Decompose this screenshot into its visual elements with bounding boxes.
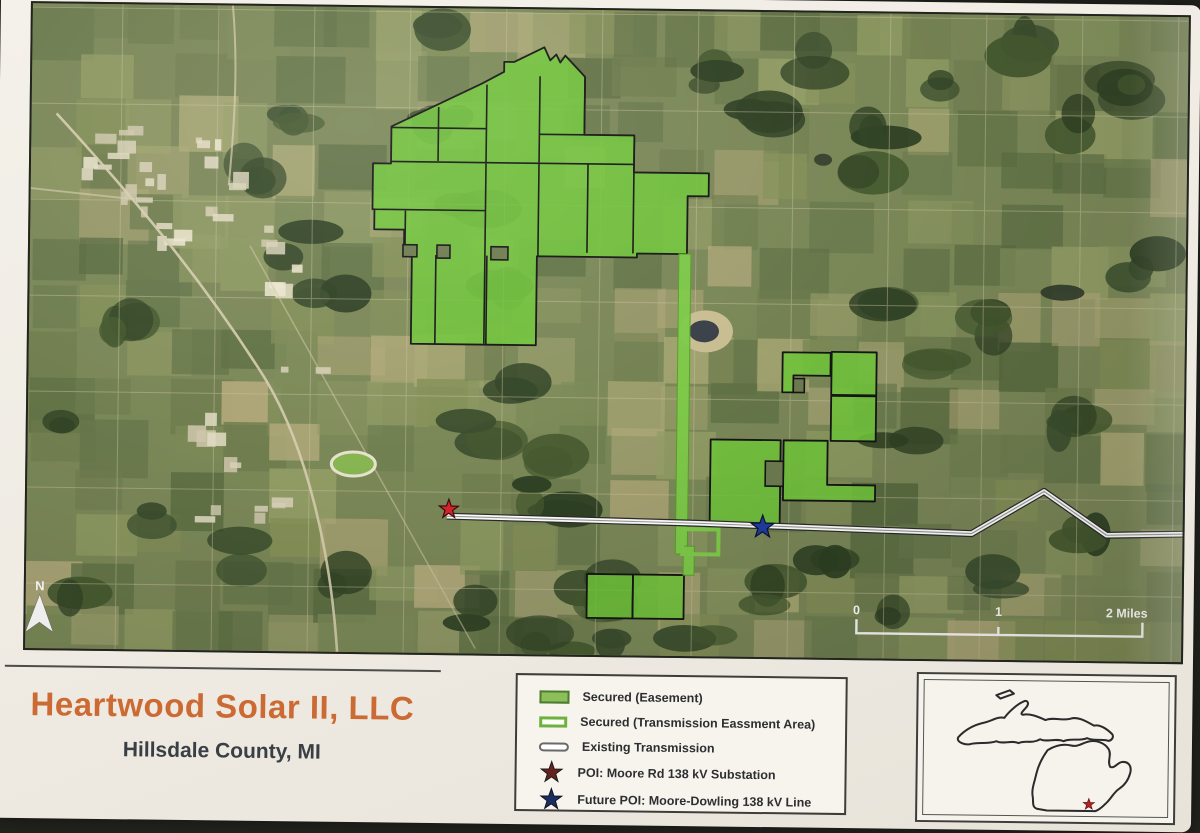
svg-text:N: N (35, 578, 45, 593)
secured-parcel-ne-3 (831, 396, 877, 442)
michigan-state-outline (957, 690, 1132, 812)
printed-map-page: 012 MilesN Heartwood Solar II, LLC Hills… (0, 0, 1200, 832)
transmission-easement-swatch-icon (539, 716, 567, 727)
secured-easement-swatch-icon (539, 690, 569, 703)
project-location-star-icon (1083, 798, 1094, 809)
michigan-outline (923, 680, 1169, 817)
legend-item-label: POI: Moore Rd 138 kV Substation (577, 766, 775, 782)
legend-item-label: Secured (Easement) (582, 690, 702, 705)
secured-parcel-south-1 (586, 574, 633, 619)
legend-item: Existing Transmission (539, 737, 845, 759)
page-subtitle: Hillsdale County, MI (4, 737, 440, 766)
map-canvas: 012 MilesN (25, 3, 1189, 662)
title-block: Heartwood Solar II, LLC Hillsdale County… (4, 665, 441, 766)
page-title: Heartwood Solar II, LLC (4, 685, 440, 728)
title-divider (5, 665, 441, 672)
legend-item-label: Existing Transmission (582, 740, 715, 756)
future-poi-star-icon (538, 787, 564, 811)
scale-label: 2 Miles (1106, 606, 1148, 621)
existing-transmission-swatch-icon (539, 742, 569, 751)
legend: Secured (Easement) Secured (Transmission… (514, 673, 848, 815)
legend-item: Future POI: Moore-Dowling 138 kV Line (538, 789, 844, 813)
legend-item: Secured (Transmission Eassment Area) (539, 712, 845, 734)
substation-star-icon (538, 760, 564, 784)
legend-item: Secured (Easement) (539, 687, 845, 709)
locator-inset-frame (922, 679, 1170, 818)
scale-label: 1 (995, 605, 1002, 619)
secured-parcel-south-2 (632, 574, 684, 619)
legend-item-label: Future POI: Moore-Dowling 138 kV Line (577, 793, 811, 810)
legend-item: POI: Moore Rd 138 kV Substation (538, 762, 844, 786)
secured-parcel-ne-2 (831, 352, 877, 396)
satellite-map: 012 MilesN (23, 1, 1191, 664)
locator-inset (915, 672, 1177, 825)
legend-item-label: Secured (Transmission Eassment Area) (580, 715, 815, 732)
scale-label: 0 (853, 603, 860, 617)
racetrack-oval (331, 452, 375, 477)
photo-background: 012 MilesN Heartwood Solar II, LLC Hills… (0, 0, 1200, 833)
